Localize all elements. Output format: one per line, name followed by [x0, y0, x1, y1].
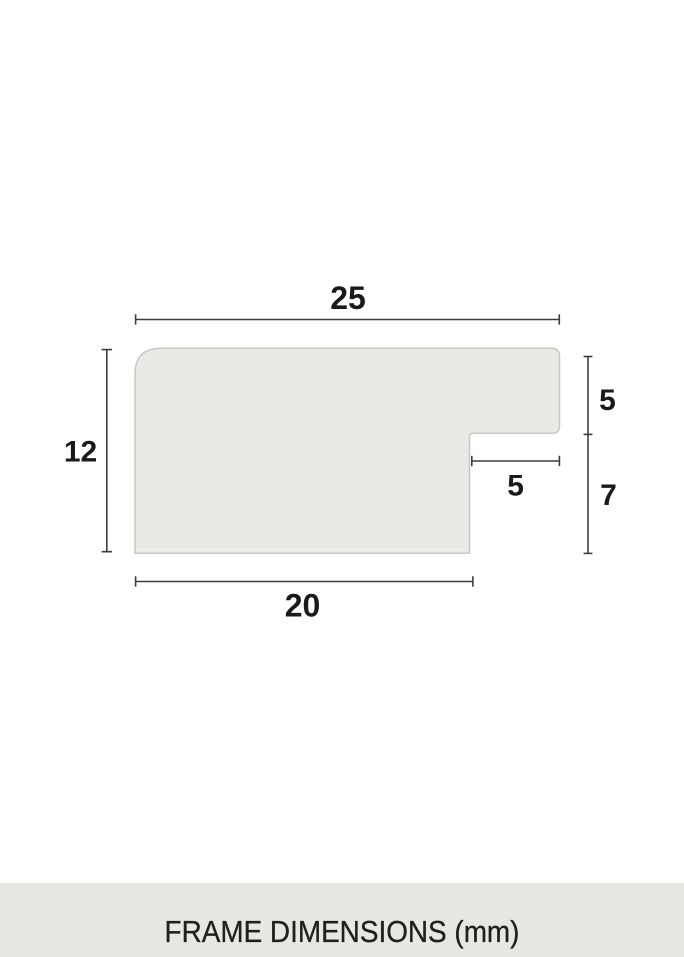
svg-text:7: 7	[600, 479, 617, 512]
svg-text:5: 5	[507, 470, 524, 503]
svg-text:25: 25	[330, 280, 366, 316]
svg-text:20: 20	[285, 587, 321, 623]
svg-text:5: 5	[599, 384, 616, 417]
svg-text:12: 12	[64, 436, 97, 469]
